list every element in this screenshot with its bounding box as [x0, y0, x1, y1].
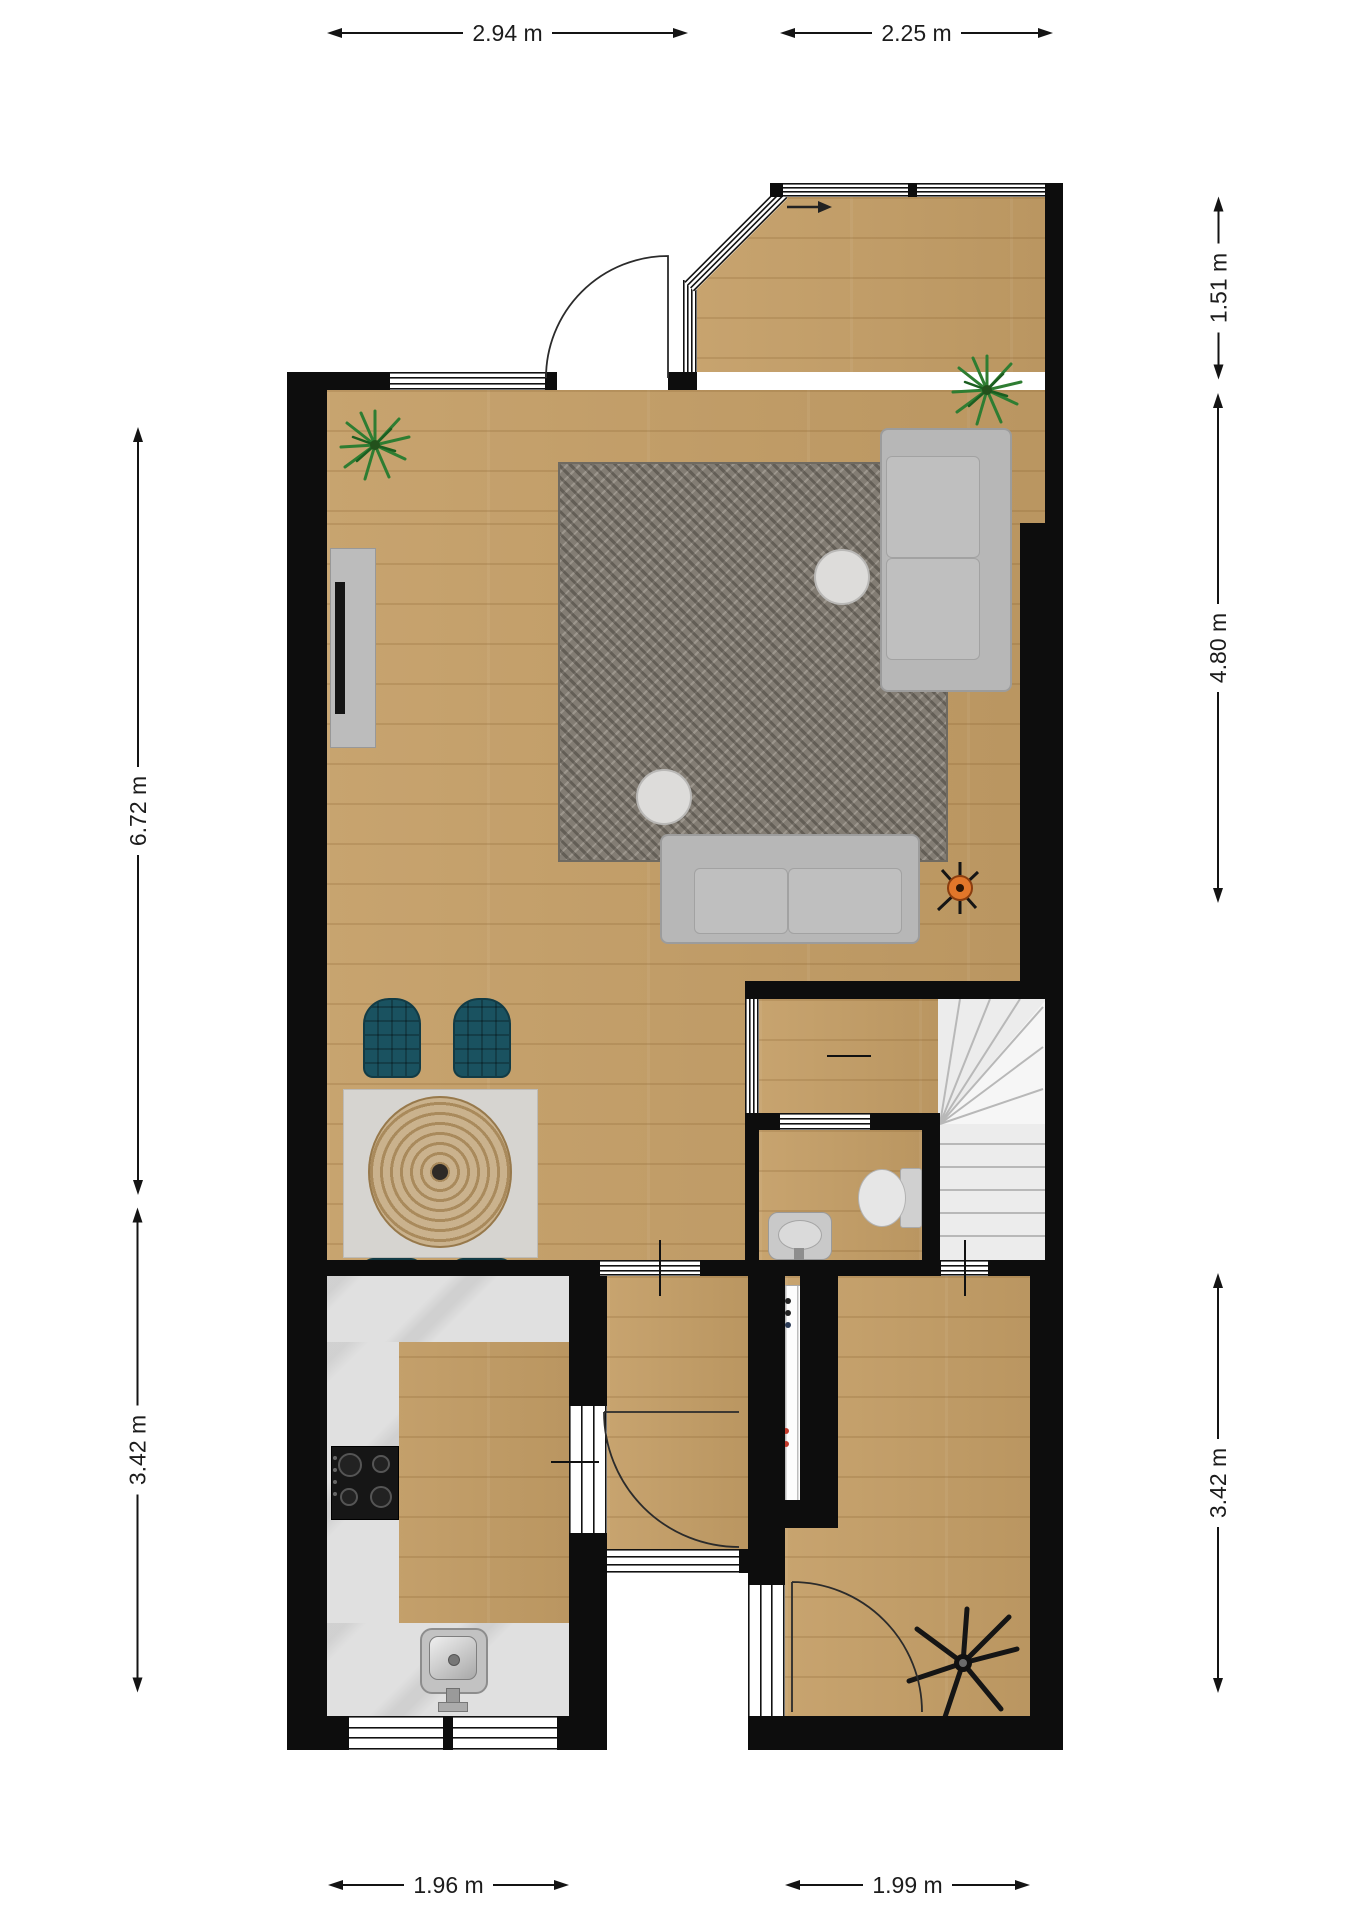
dimension-label: 3.42 m	[126, 1406, 150, 1494]
opening-tick	[827, 1055, 871, 1057]
dimension-label: 2.25 m	[872, 21, 960, 45]
dimension-label: 1.96 m	[404, 1873, 492, 1897]
dimension-bottom-room: 1.99 m	[785, 1873, 1030, 1897]
opening-tick	[659, 1240, 661, 1296]
dimension-label: 4.80 m	[1206, 604, 1230, 692]
dimension-left-kitchen: 3.42 m	[126, 1208, 150, 1693]
entrance-arrow-icon	[787, 201, 832, 213]
dimension-label: 1.99 m	[863, 1873, 951, 1897]
dimension-label: 6.72 m	[126, 767, 150, 855]
dimension-label: 1.51 m	[1207, 244, 1231, 332]
dimension-top-bay: 2.25 m	[780, 21, 1053, 45]
dimension-bottom-kitchen: 1.96 m	[328, 1873, 569, 1897]
dimension-right-living: 4.80 m	[1206, 393, 1230, 903]
dimension-label: 3.42 m	[1206, 1439, 1230, 1527]
opening-tick	[964, 1240, 966, 1296]
dimension-right-room: 3.42 m	[1206, 1273, 1230, 1693]
dimension-label: 2.94 m	[463, 21, 551, 45]
door-arc	[0, 0, 1358, 1920]
floor-plan-canvas: 2.94 m 2.25 m 1.51 m 4.80 m 3.42 m 6.72 …	[0, 0, 1358, 1920]
dimension-right-bay: 1.51 m	[1207, 197, 1231, 380]
dimension-left-living: 6.72 m	[126, 427, 150, 1195]
dimension-top-living: 2.94 m	[327, 21, 688, 45]
opening-tick	[551, 1461, 599, 1463]
